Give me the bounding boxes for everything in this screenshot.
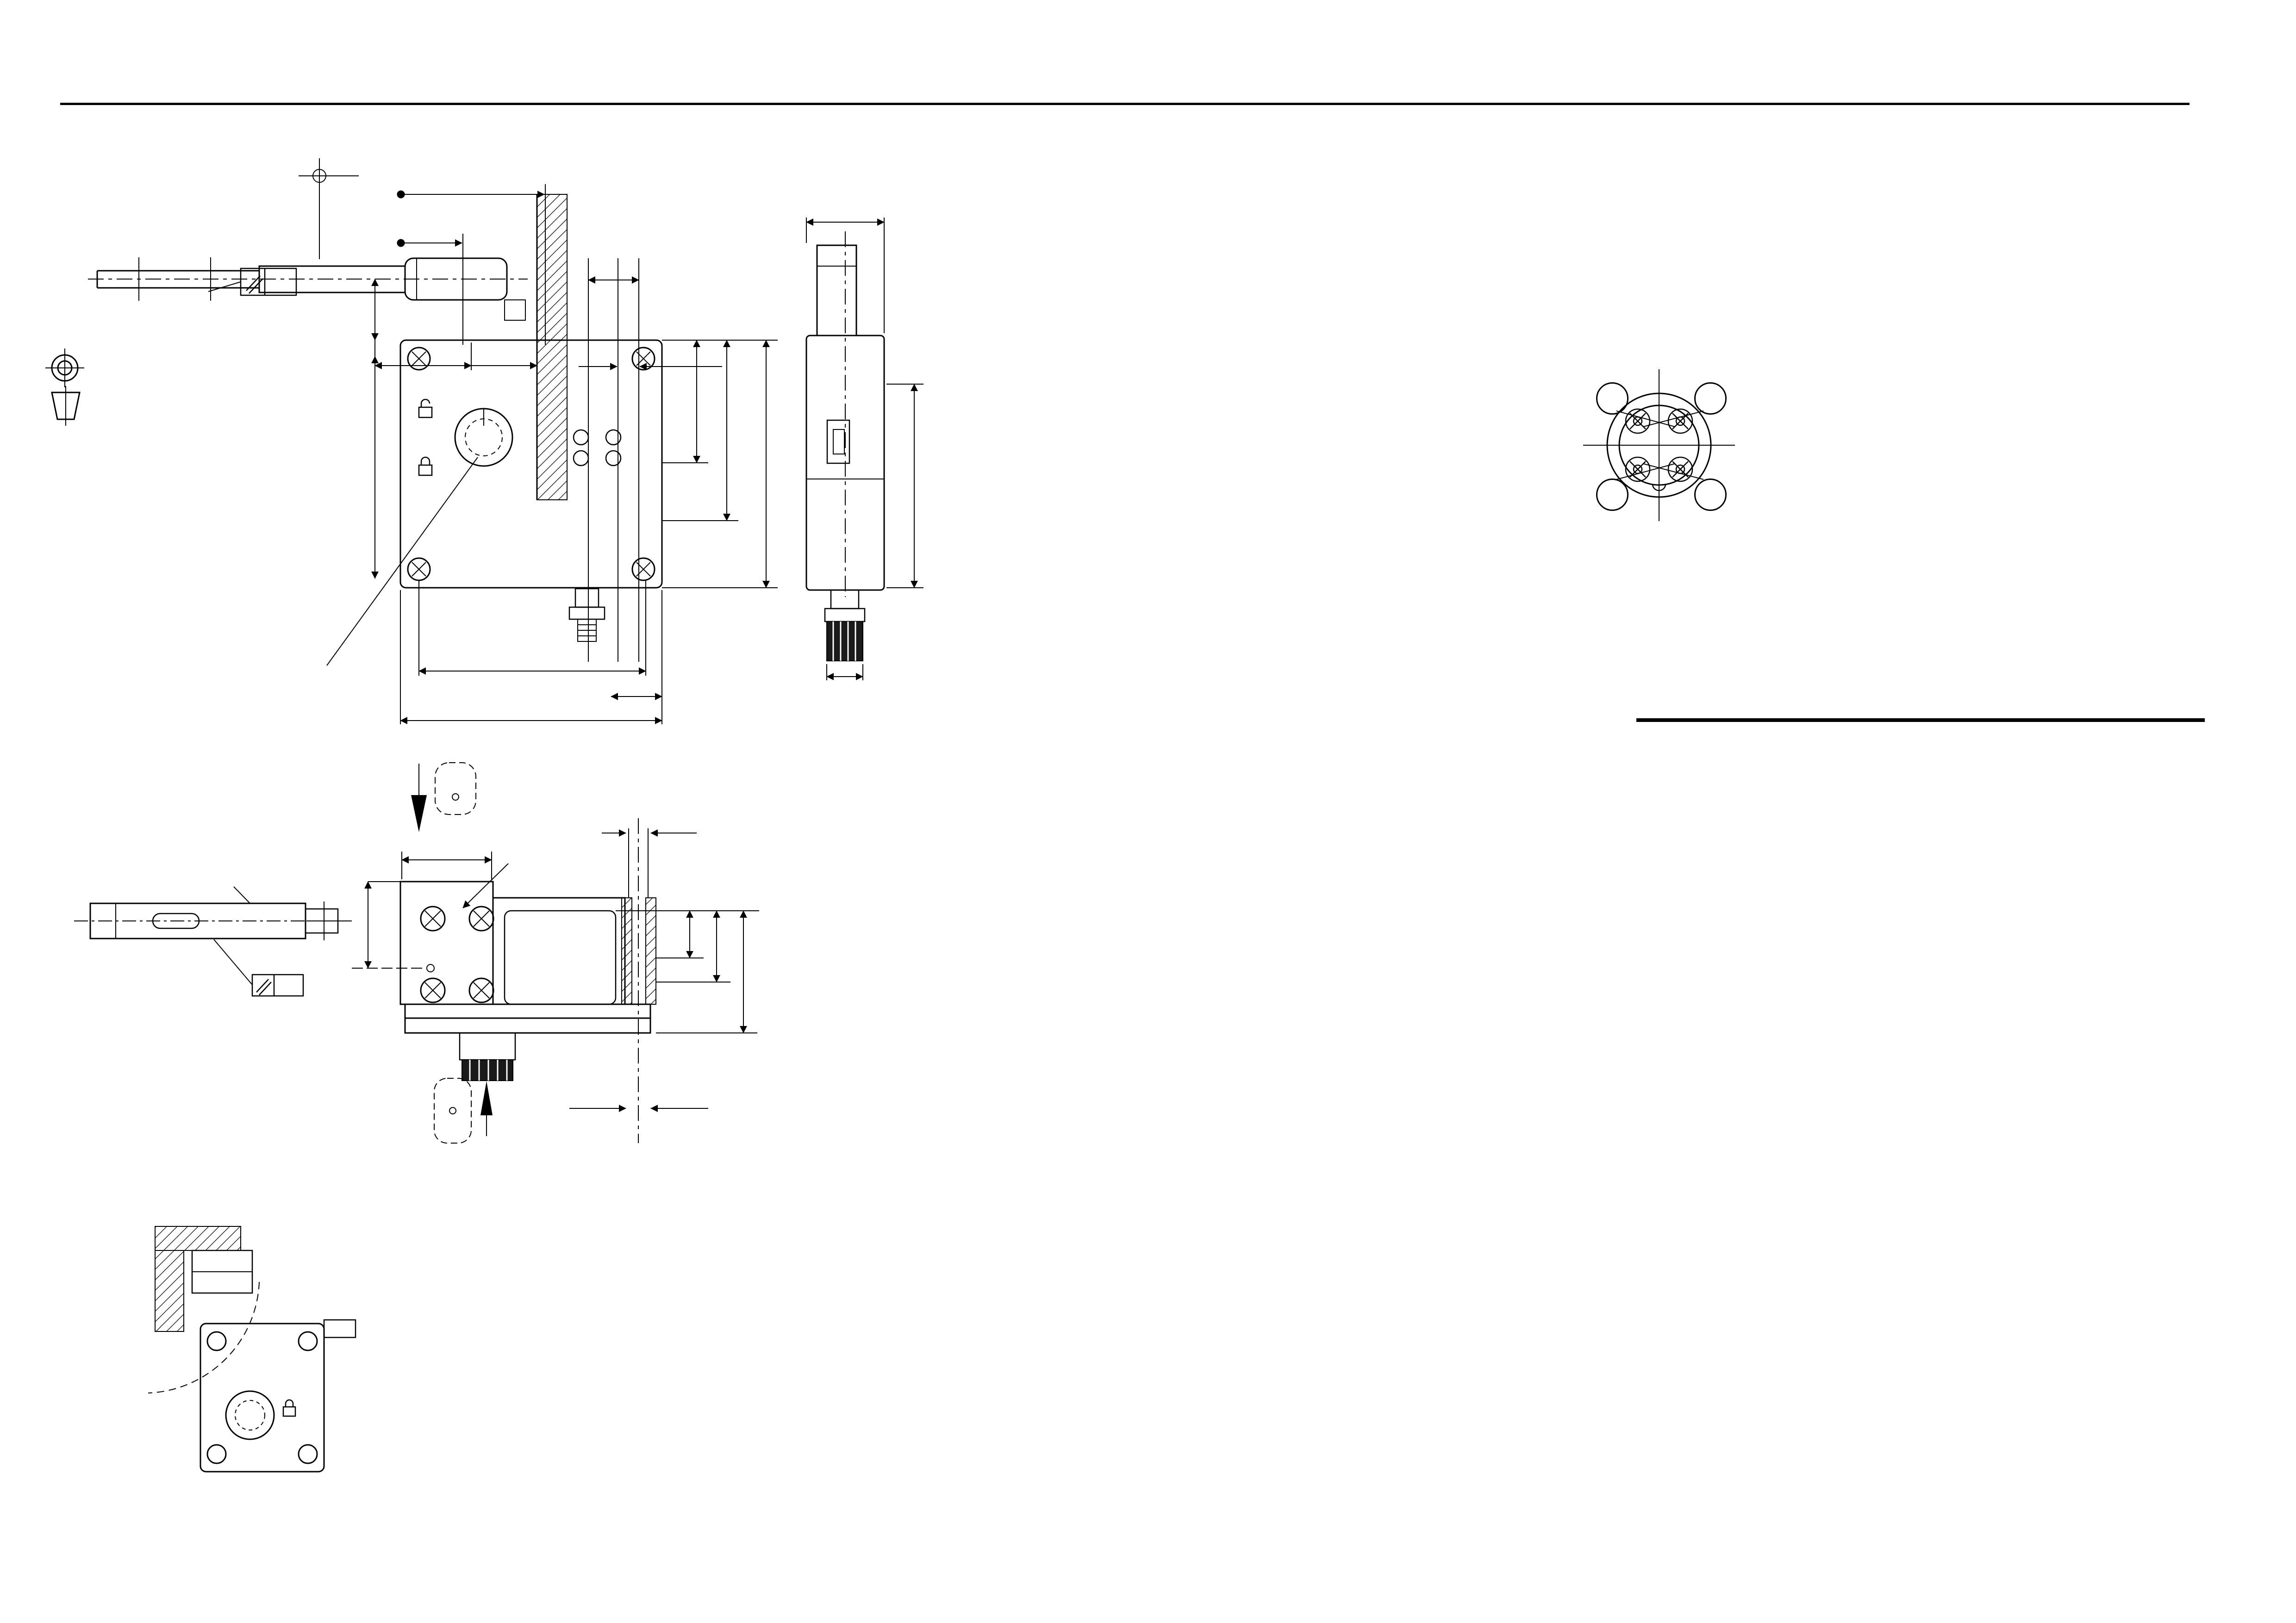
cup-symbol-icon [52,386,80,426]
projection-symbol-icon [45,348,84,387]
technical-drawing [0,0,2296,1623]
actuator-detail-drawing [74,887,352,996]
unlock-icon [419,399,432,417]
lock-icon-tzr [283,1400,295,1416]
datasheet-page: { "header": { "doc": "Datenblatt / Data … [0,0,2296,1623]
section-view-drawing [352,763,759,1143]
lock-icon [419,457,432,475]
m12-connector-diagram [1583,369,1735,521]
side-view-drawing [806,218,923,680]
tzr-view-drawing [148,1226,356,1472]
front-view-drawing [88,158,778,724]
